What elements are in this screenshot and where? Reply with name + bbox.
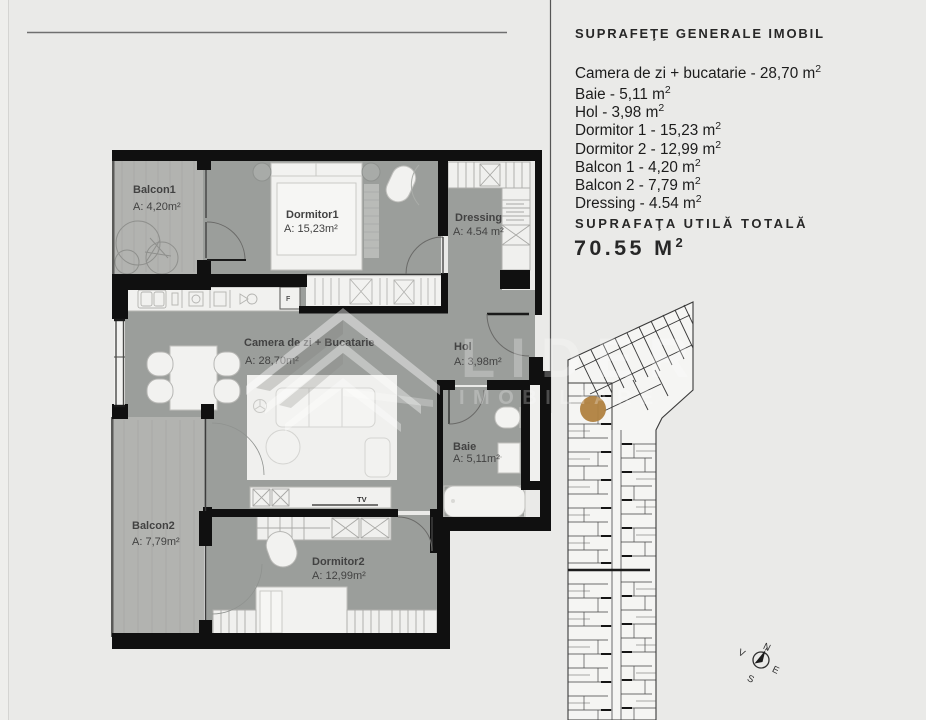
svg-text:Balcon 2 - 7,79 m2: Balcon 2 - 7,79 m2 bbox=[575, 175, 701, 194]
svg-text:Balcon1: Balcon1 bbox=[133, 184, 176, 196]
svg-text:Dressing - 4.54 m2: Dressing - 4.54 m2 bbox=[575, 193, 702, 212]
svg-text:IMOBILIARE: IMOBILIARE bbox=[459, 387, 662, 409]
svg-text:Dormitor 2 - 12,99 m2: Dormitor 2 - 12,99 m2 bbox=[575, 139, 721, 158]
svg-text:SUPRAFAŢA UTILĂ TOTALĂ: SUPRAFAŢA UTILĂ TOTALĂ bbox=[575, 216, 808, 231]
svg-text:Baie - 5,11 m2: Baie - 5,11 m2 bbox=[575, 84, 671, 103]
svg-text:A: 7,79m²: A: 7,79m² bbox=[132, 536, 180, 548]
svg-text:Hol - 3,98 m2: Hol - 3,98 m2 bbox=[575, 102, 664, 121]
svg-text:TV: TV bbox=[357, 495, 367, 504]
svg-text:Camera de zi + bucatarie - 28,: Camera de zi + bucatarie - 28,70 m2 bbox=[575, 63, 821, 82]
svg-text:Dormitor1: Dormitor1 bbox=[286, 209, 339, 221]
svg-text:A: 15,23m²: A: 15,23m² bbox=[284, 223, 338, 235]
svg-text:Balcon2: Balcon2 bbox=[132, 520, 175, 532]
svg-text:Dormitor 1 - 15,23 m2: Dormitor 1 - 15,23 m2 bbox=[575, 120, 721, 139]
svg-text:F: F bbox=[286, 296, 291, 303]
svg-text:A: 12,99m²: A: 12,99m² bbox=[312, 570, 366, 582]
svg-text:A: 5,11m²: A: 5,11m² bbox=[453, 453, 500, 465]
svg-text:70.55 M2: 70.55 M2 bbox=[574, 235, 686, 260]
svg-text:A: 4.54 m²: A: 4.54 m² bbox=[453, 226, 504, 238]
svg-text:LIDER: LIDER bbox=[461, 326, 704, 389]
svg-text:Dressing: Dressing bbox=[455, 212, 502, 224]
svg-text:SUPRAFEŢE GENERALE IMOBIL: SUPRAFEŢE GENERALE IMOBIL bbox=[575, 26, 825, 41]
svg-text:A: 4,20m²: A: 4,20m² bbox=[133, 201, 181, 213]
svg-text:Baie: Baie bbox=[453, 441, 476, 453]
svg-text:Dormitor2: Dormitor2 bbox=[312, 556, 365, 568]
svg-text:Balcon 1 - 4,20 m2: Balcon 1 - 4,20 m2 bbox=[575, 157, 701, 176]
